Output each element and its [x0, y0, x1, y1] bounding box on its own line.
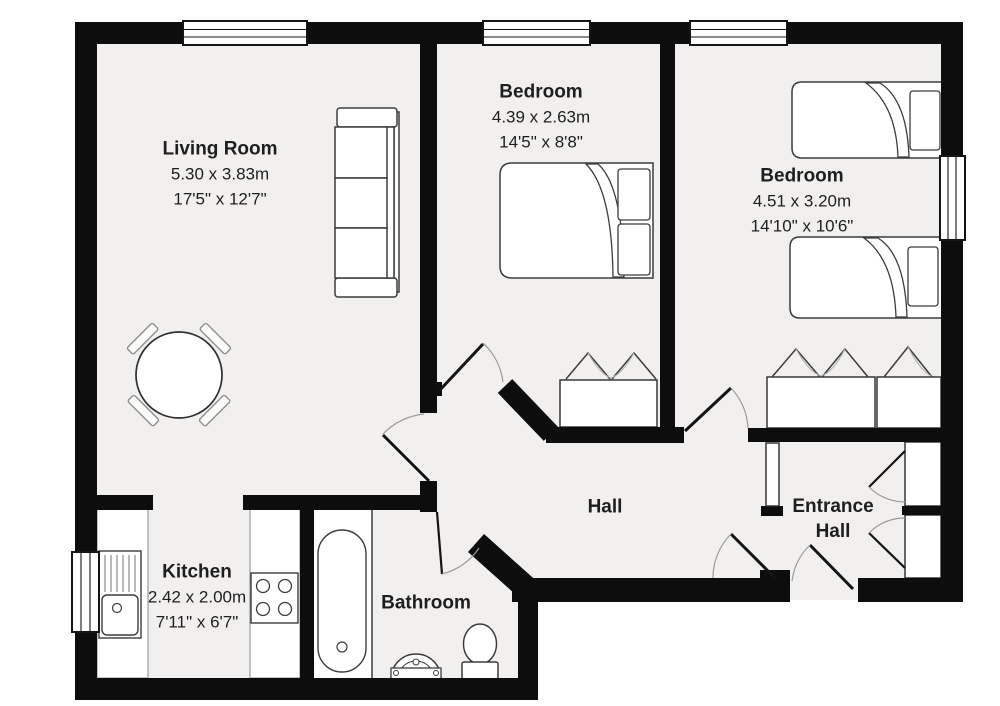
- room-name: Living Room: [162, 137, 277, 162]
- sink-drain: [113, 604, 122, 613]
- entrance-closet: [905, 515, 941, 578]
- sink-basin: [102, 595, 138, 635]
- bathtub-drain: [337, 642, 347, 652]
- window-bedroom-middle: [483, 21, 590, 45]
- pillow: [618, 169, 650, 220]
- wall-living-bedroom: [420, 44, 437, 413]
- room-dimensions-imperial: 17'5" x 12'7": [162, 187, 277, 212]
- washbasin-foot: [394, 671, 399, 676]
- room-dimensions-metric: 4.39 x 2.63m: [492, 105, 590, 130]
- wall-closet-divider: [902, 506, 943, 515]
- single-bed: [792, 82, 943, 158]
- room-name: Bedroom: [751, 164, 854, 189]
- room-dimensions-metric: 2.42 x 2.00m: [148, 585, 246, 610]
- toilet-bowl: [464, 624, 497, 664]
- sofa-armrest-bottom: [335, 278, 397, 297]
- entrance-hall-label: Entrance Hall: [777, 494, 889, 544]
- window-bedroom-right-side: [940, 156, 965, 240]
- living-room-label: Living Room 5.30 x 3.83m 17'5" x 12'7": [162, 137, 277, 212]
- room-name: Entrance Hall: [777, 494, 889, 544]
- floor-plan-canvas: Living Room 5.30 x 3.83m 17'5" x 12'7" B…: [0, 0, 1000, 706]
- wall-bedroom2-bottom: [748, 428, 941, 442]
- window-living-room: [183, 21, 307, 45]
- sofa-cushion: [335, 127, 387, 178]
- wall-exterior-right: [941, 22, 963, 602]
- room-dimensions-imperial: 14'5" x 8'8": [492, 130, 590, 155]
- wardrobe-closet: [767, 377, 875, 428]
- window-bedroom-right: [690, 21, 787, 45]
- wall-living-bathroom: [243, 495, 437, 510]
- pillow: [908, 247, 938, 306]
- room-name: Bathroom: [381, 591, 471, 616]
- bedroom-right-label: Bedroom 4.51 x 3.20m 14'10" x 10'6": [751, 164, 854, 239]
- bathroom-label: Bathroom: [381, 591, 471, 616]
- dining-table: [136, 332, 222, 418]
- room-dimensions-imperial: 14'10" x 10'6": [751, 214, 854, 239]
- kitchen-label: Kitchen 2.42 x 2.00m 7'11" x 6'7": [148, 560, 246, 635]
- hob: [251, 573, 298, 623]
- wardrobe-closet: [560, 380, 657, 427]
- dining-set: [127, 323, 232, 427]
- entrance-closet: [905, 442, 941, 506]
- wall-bedroom-divider: [660, 44, 675, 428]
- window-kitchen: [72, 552, 99, 632]
- sofa-armrest-top: [337, 108, 397, 127]
- wall-exterior-bottom-left: [75, 678, 538, 700]
- washbasin-foot: [434, 671, 439, 676]
- room-dimensions-imperial: 7'11" x 6'7": [148, 610, 246, 635]
- wall-kitchen-bathroom: [300, 508, 314, 680]
- pillow: [910, 91, 940, 150]
- room-dimensions-metric: 4.51 x 3.20m: [751, 189, 854, 214]
- bedroom-middle-label: Bedroom 4.39 x 2.63m 14'5" x 8'8": [492, 80, 590, 155]
- room-name: Hall: [588, 495, 623, 520]
- sofa: [335, 108, 399, 297]
- room-name: Kitchen: [148, 560, 246, 585]
- washbasin-tap: [413, 659, 419, 665]
- toilet-cistern: [462, 662, 498, 679]
- hall-label: Hall: [588, 495, 623, 520]
- room-name: Bedroom: [492, 80, 590, 105]
- wall-hall-bottom: [512, 578, 790, 602]
- double-bed: [500, 163, 653, 278]
- wall-living-kitchen: [97, 495, 153, 510]
- sofa-cushion: [335, 178, 387, 228]
- pillow: [618, 224, 650, 275]
- wall-bedroom2-door-stub: [660, 427, 684, 443]
- sofa-cushion: [335, 228, 387, 278]
- single-bed: [790, 237, 943, 318]
- room-dimensions-metric: 5.30 x 3.83m: [162, 162, 277, 187]
- floor-entrance-threshold: [790, 578, 858, 600]
- wardrobe-closet: [877, 377, 941, 428]
